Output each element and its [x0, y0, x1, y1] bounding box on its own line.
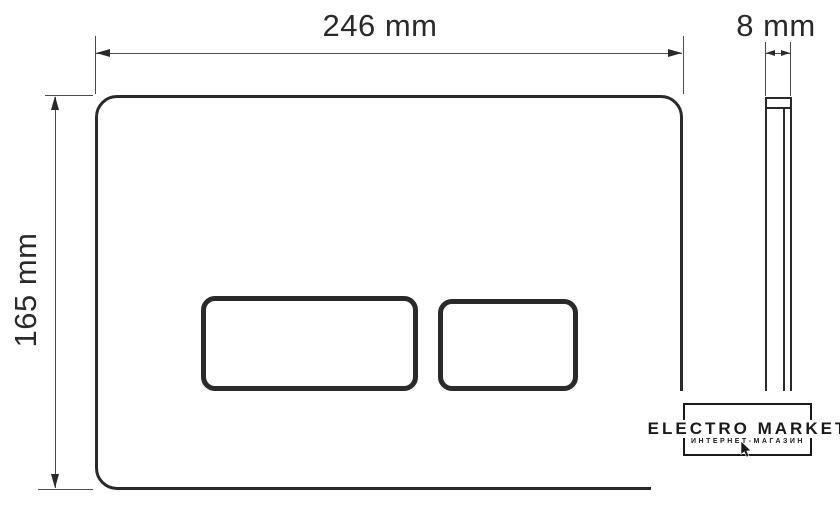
- arrowhead-down-icon: [51, 474, 59, 488]
- watermark-brand-text: ELECTRO MARKET: [643, 420, 840, 438]
- height-dimension-label: 165 mm: [9, 210, 43, 370]
- thickness-dimension-label: 8 mm: [716, 8, 836, 44]
- width-dimension-line: [96, 53, 682, 54]
- thickness-extension-line-right: [790, 42, 791, 96]
- height-dimension-line: [55, 97, 56, 488]
- technical-drawing-canvas: 246 mm 165 mm 8 mm ELECTRO MARKET ИНТЕРН…: [0, 0, 840, 511]
- cursor-icon: [740, 441, 754, 458]
- arrowhead-left-icon: [96, 49, 110, 57]
- width-extension-line-right: [683, 36, 684, 94]
- arrowhead-left-small-icon: [766, 50, 775, 56]
- side-view-top-line: [767, 107, 790, 109]
- arrowhead-right-small-icon: [781, 50, 790, 56]
- arrowhead-right-icon: [668, 49, 682, 57]
- flush-button-small: [438, 299, 578, 391]
- arrowhead-up-icon: [51, 96, 59, 110]
- width-extension-line-left: [95, 36, 96, 94]
- flush-button-large: [201, 296, 418, 391]
- flush-plate-outline: [95, 95, 683, 490]
- height-extension-line-bottom: [38, 489, 93, 490]
- width-dimension-label: 246 mm: [260, 8, 500, 44]
